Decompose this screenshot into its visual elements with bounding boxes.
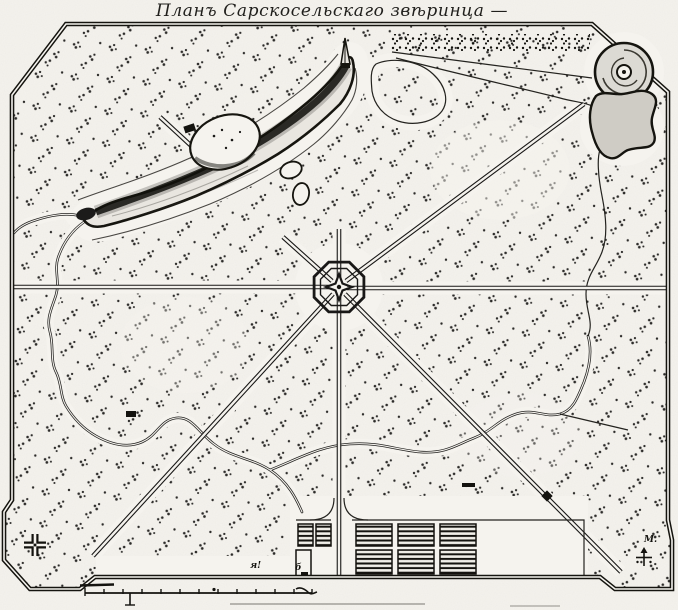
map-title: Планъ Сарскосельскаго звѣринца — [155, 1, 508, 21]
scanned-map: я! б М. Планъ Сарскосельскаго звѣринца — [0, 0, 678, 610]
building-4 [462, 483, 475, 487]
building-2 [126, 411, 136, 417]
margin-mark-3: М. [643, 535, 657, 545]
margin-mark-2: б [295, 562, 302, 573]
map-svg: я! б М. Планъ Сарскосельскаго звѣринца — [0, 0, 678, 610]
margin-mark-1: я! [250, 561, 261, 571]
mound-pond [590, 91, 656, 158]
tree-allee [390, 34, 590, 51]
